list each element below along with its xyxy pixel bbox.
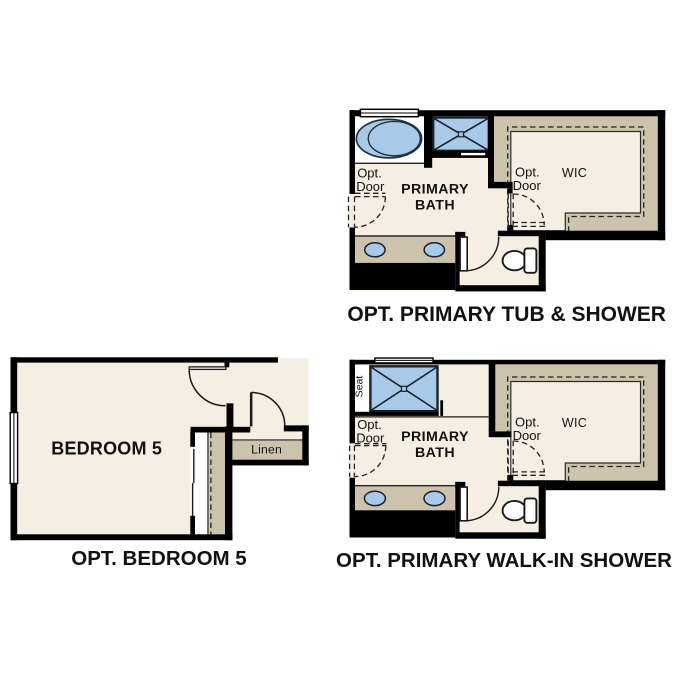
svg-text:OPT. PRIMARY TUB & SHOWER: OPT. PRIMARY TUB & SHOWER bbox=[347, 303, 666, 326]
svg-text:Door: Door bbox=[513, 428, 542, 443]
svg-text:BEDROOM 5: BEDROOM 5 bbox=[51, 439, 162, 459]
svg-text:Door: Door bbox=[513, 178, 542, 193]
svg-text:Door: Door bbox=[356, 431, 385, 446]
svg-text:BATH: BATH bbox=[415, 445, 455, 461]
svg-text:OPT. PRIMARY WALK-IN SHOWER: OPT. PRIMARY WALK-IN SHOWER bbox=[336, 549, 672, 572]
svg-text:WIC: WIC bbox=[562, 166, 587, 180]
svg-text:Linen: Linen bbox=[251, 443, 282, 457]
svg-text:Door: Door bbox=[356, 179, 385, 194]
svg-text:WIC: WIC bbox=[562, 416, 587, 430]
svg-text:OPT. BEDROOM 5: OPT. BEDROOM 5 bbox=[71, 547, 246, 570]
svg-text:PRIMARY: PRIMARY bbox=[401, 181, 469, 197]
svg-text:Seat: Seat bbox=[354, 376, 366, 398]
svg-text:BATH: BATH bbox=[415, 197, 455, 213]
svg-text:PRIMARY: PRIMARY bbox=[401, 429, 469, 445]
